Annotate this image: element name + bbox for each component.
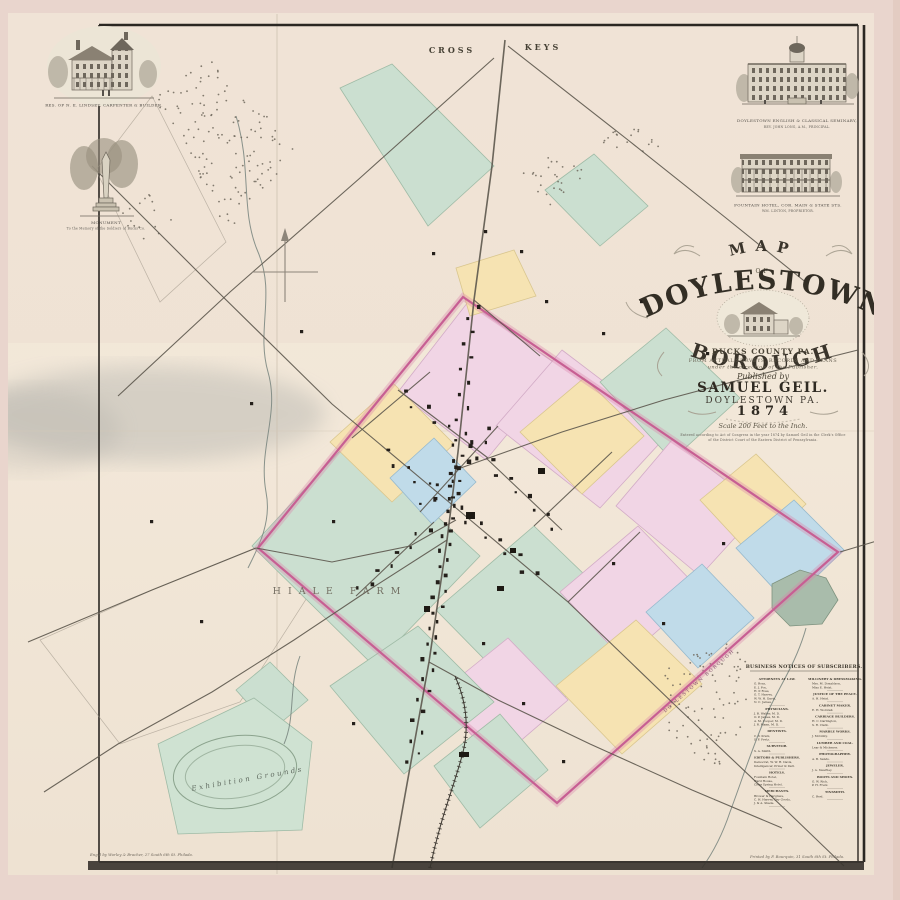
caption-monument: MONUMENT [91, 220, 121, 225]
title-year: 1874 [737, 404, 793, 419]
notice-entry: A. H. Heist. [811, 697, 829, 701]
caption-monument-2: To the Memory of the Soldiers of Bucks C… [67, 227, 146, 231]
notice-section-title: MERCHANTS. [765, 789, 789, 793]
title-scale: Scale 200 Feet to the Inch. [719, 422, 808, 430]
notice-section-title: MARBLE WORKS. [819, 730, 850, 734]
mat-edge-right [893, 0, 900, 900]
notice-entry: S. R. Clark. [812, 723, 829, 727]
caption-residence: RES. OF N. E. LINDSEY, CARPENTER & BUILD… [45, 103, 163, 108]
notice-entry: N. C. James. [754, 700, 772, 704]
notice-entry: J. McGinty. [811, 734, 828, 738]
notice-entry: J. & A. Shade. [753, 801, 774, 805]
notice-entry: Miss E. Heist. [812, 685, 833, 689]
title-surveys-1: FROM ACTUAL SURVEYS, RECORDS AND PLANS [689, 358, 837, 364]
label-cross: CROSS [429, 45, 475, 55]
notice-entry: A. B. Sands. [811, 757, 830, 761]
caption-hotel: FOUNTAIN HOTEL, COR. MAIN & STATE STS. [734, 203, 842, 208]
notice-section-title: SURVEYOR. [767, 744, 788, 748]
caption-seminary-2: REV. JOHN LONG, A.M., PRINCIPAL. [764, 125, 831, 129]
imprint-printer: Printed by F. Bourquin, 31 South 6th St.… [749, 854, 844, 859]
notice-section-title: TINSMITH. [825, 790, 845, 794]
notice-entry: J. R. Mann, M. D. [753, 723, 779, 727]
imprint-engraver: Eng'd by Worley & Bracher, 27 South 6th … [89, 852, 193, 857]
notice-entry: Clear Spring Hotel. [754, 783, 783, 787]
notice-section-title: CABINET MAKER. [819, 703, 851, 707]
notice-entry: P. H. Fretz. [812, 783, 828, 787]
notice-entry: Intelligencer, Prizer & Darl. [754, 764, 795, 768]
notice-section-title: BOOTS AND SHOES. [817, 775, 853, 779]
notice-section-title: JUSTICE OF THE PEACE. [812, 692, 857, 696]
title-entry-line-2: of the District Court of the Eastern Dis… [708, 438, 817, 442]
caption-seminary: DOYLESTOWN ENGLISH & CLASSICAL SEMINARY, [737, 118, 857, 123]
notice-entry: C. Reel. [812, 794, 823, 798]
caption-hotel-2: WM. LINTON, PROPRIETOR. [762, 209, 814, 213]
notice-section-title: LUMBER AND COAL. [817, 741, 854, 745]
notice-entry: S. A. Smith. [754, 749, 771, 753]
notice-section-title: CARRIAGE BUILDERS. [815, 715, 855, 719]
notice-entry: S. F. Fretz. [754, 738, 770, 742]
label-keys: KEYS [525, 42, 562, 52]
notice-entry: Lear & Michener. [812, 746, 838, 750]
title-publisher: SAMUEL GEIL. [697, 380, 829, 396]
title-surveys-2: under the direction of the Publisher. [708, 365, 819, 371]
title-entry-line-1: Entered according to Act of Congress in … [680, 433, 845, 437]
notice-section-title: HOTELS. [769, 771, 785, 775]
notice-section-title: ATTORNEYS AT LAW. [758, 677, 796, 681]
engraving-hotel [731, 154, 842, 196]
sheet-bottom-shadow [88, 861, 864, 870]
notice-section-title: MILLINERY & DRESSMAKING. [808, 677, 862, 681]
notice-section-title: EDITORS & PUBLISHERS. [754, 756, 800, 760]
notice-entry: E. H. Worstall. [812, 708, 833, 712]
label-hiale-farm: HIALE FARM [273, 586, 408, 597]
notice-section-title: JEWELER. [825, 764, 844, 768]
business-notices-header: BUSINESS NOTICES OF SUBSCRIBERS. [746, 664, 863, 670]
engraving-residence [47, 26, 161, 106]
title-county: BUCKS COUNTY PA. [712, 347, 814, 356]
title-vignette-house [717, 290, 809, 346]
notice-section-title: PHOTOGRAPHER. [819, 752, 851, 756]
notice-section-title: PHYSICIANS. [765, 707, 788, 711]
map-artwork: CROSS KEYS HIALE FARM Exhibition Grounds… [0, 0, 900, 900]
notice-section-title: DENTISTS. [767, 729, 786, 733]
notice-entry: J. A. Swartley. [811, 768, 832, 772]
